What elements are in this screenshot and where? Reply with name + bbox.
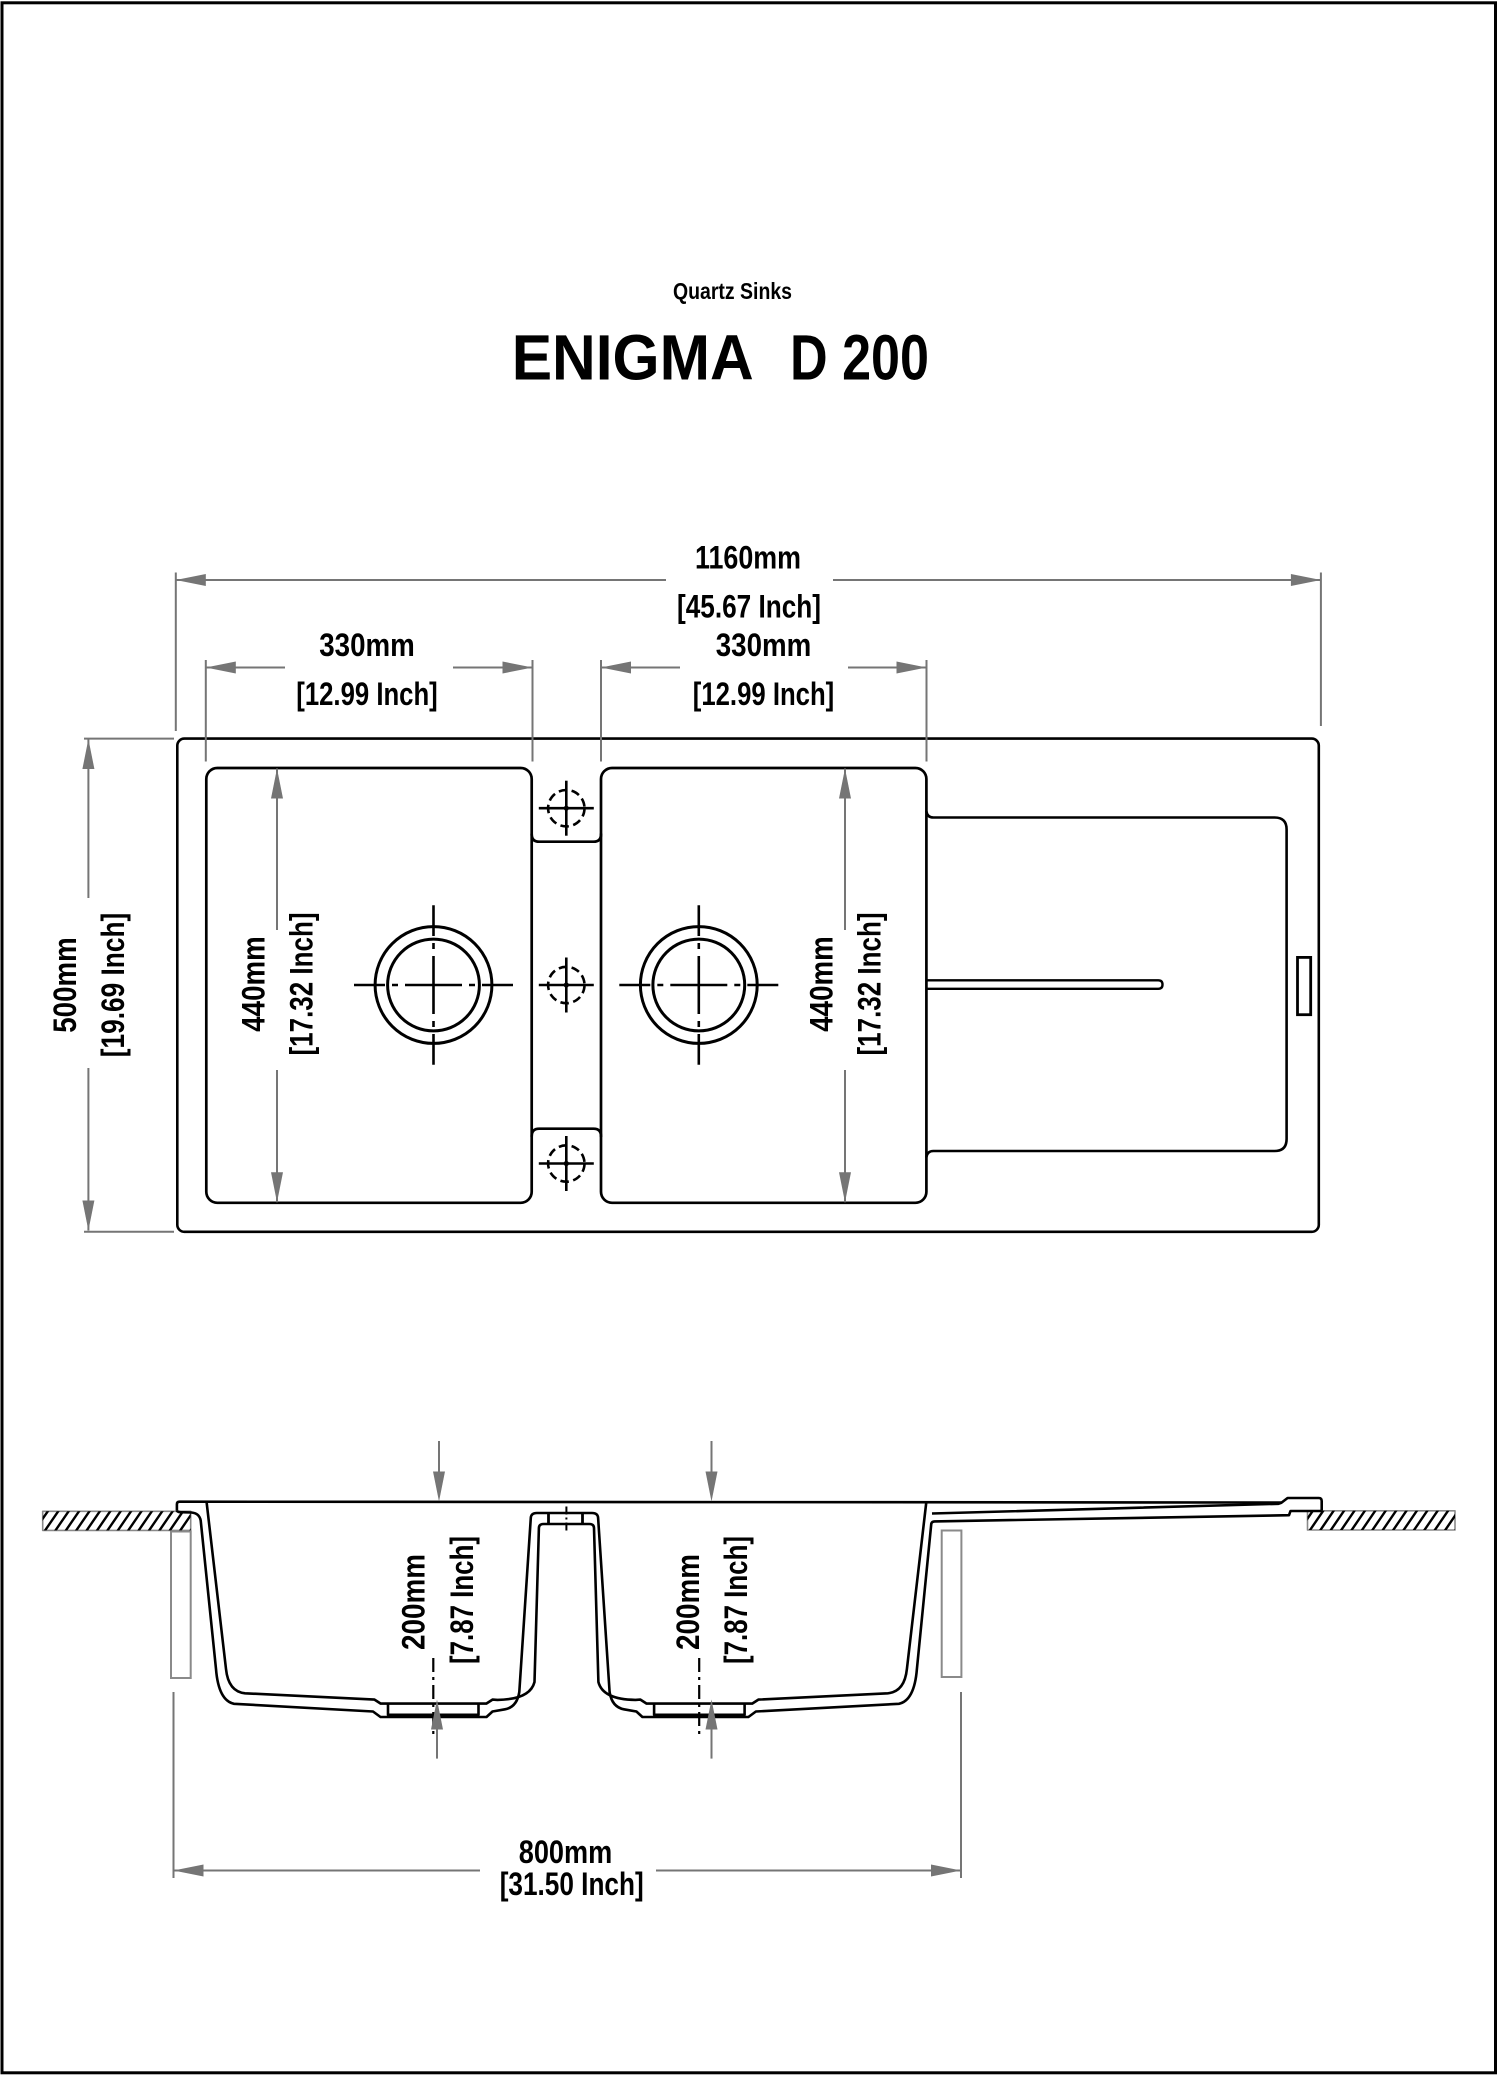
svg-text:[7.87 Inch]: [7.87 Inch] [444, 1536, 480, 1664]
svg-text:200mm: 200mm [396, 1554, 432, 1650]
svg-text:[45.67 Inch]: [45.67 Inch] [677, 589, 821, 625]
svg-text:200mm: 200mm [670, 1554, 706, 1650]
svg-text:800mm: 800mm [519, 1834, 613, 1870]
svg-text:[12.99 Inch]: [12.99 Inch] [693, 676, 835, 712]
svg-text:[7.87 Inch]: [7.87 Inch] [718, 1536, 754, 1664]
svg-text:[19.69 Inch]: [19.69 Inch] [95, 913, 131, 1058]
svg-text:[17.32 Inch]: [17.32 Inch] [852, 913, 888, 1056]
svg-text:Quartz Sinks: Quartz Sinks [673, 278, 792, 304]
svg-text:330mm: 330mm [319, 627, 415, 663]
svg-text:[17.32 Inch]: [17.32 Inch] [284, 913, 320, 1056]
svg-text:ENIGMA: ENIGMA [512, 322, 754, 394]
svg-text:1160mm: 1160mm [695, 540, 801, 576]
svg-text:440mm: 440mm [236, 936, 272, 1032]
svg-text:330mm: 330mm [716, 627, 812, 663]
svg-text:[12.99 Inch]: [12.99 Inch] [296, 676, 438, 712]
svg-text:D 200: D 200 [790, 322, 929, 394]
svg-text:500mm: 500mm [47, 937, 83, 1033]
svg-text:440mm: 440mm [804, 936, 840, 1032]
svg-text:[31.50 Inch]: [31.50 Inch] [500, 1866, 644, 1902]
